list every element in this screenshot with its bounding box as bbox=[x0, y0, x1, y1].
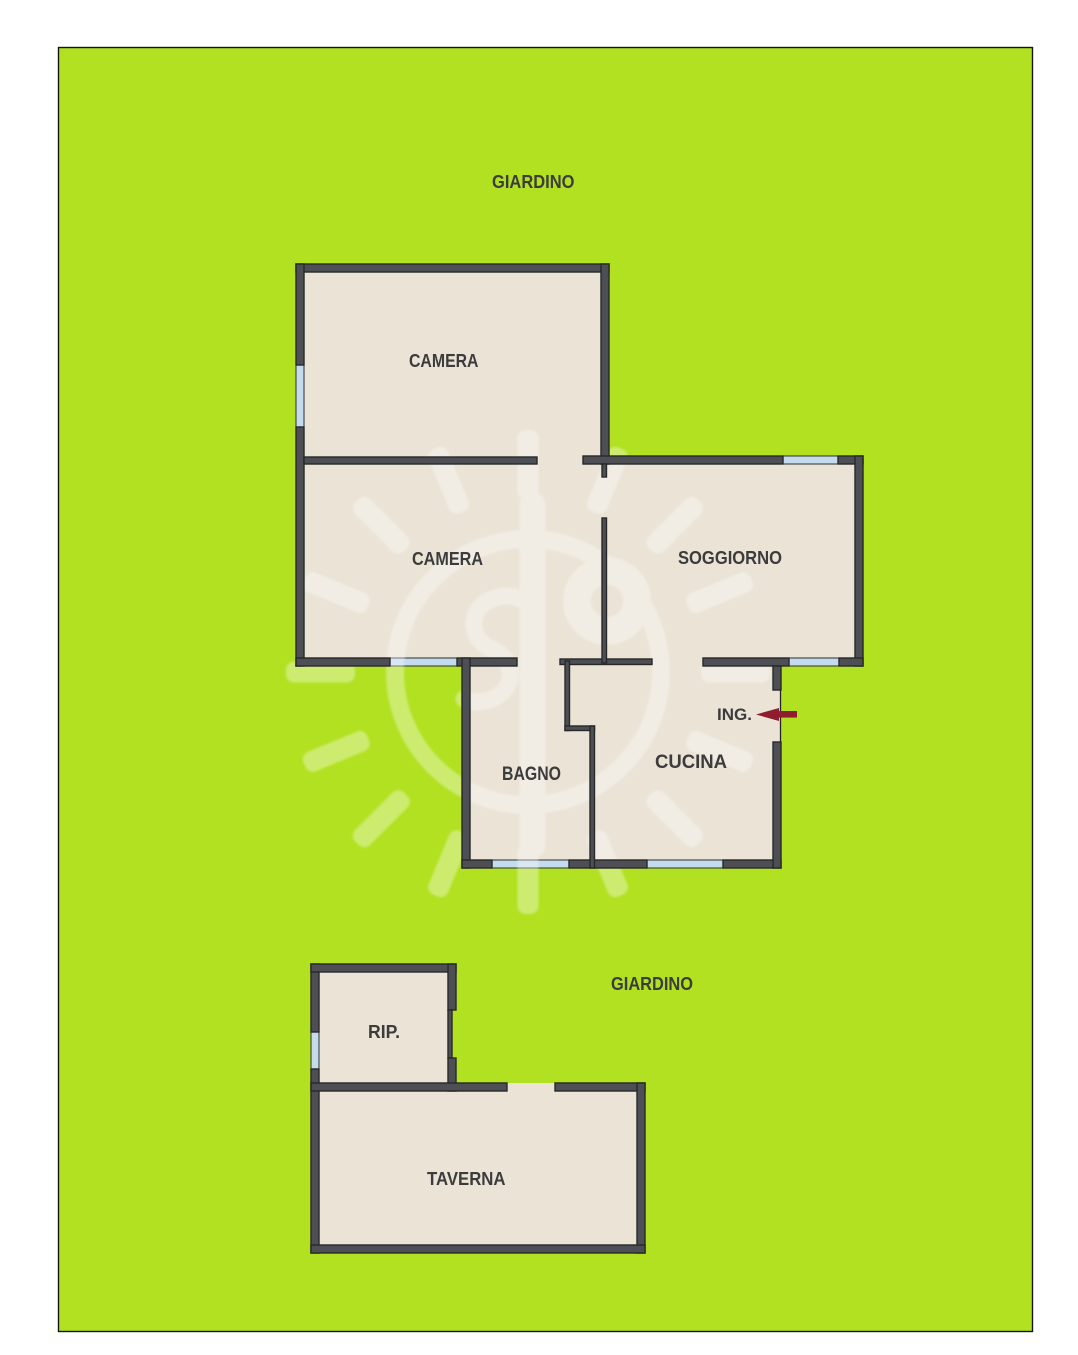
svg-text:TAVERNA: TAVERNA bbox=[427, 1168, 506, 1189]
svg-text:GIARDINO: GIARDINO bbox=[611, 974, 693, 994]
svg-text:CUCINA: CUCINA bbox=[655, 752, 727, 773]
svg-text:ING.: ING. bbox=[717, 705, 752, 724]
svg-text:RIP.: RIP. bbox=[368, 1022, 400, 1042]
svg-text:CAMERA: CAMERA bbox=[409, 351, 479, 371]
svg-text:CAMERA: CAMERA bbox=[412, 549, 483, 569]
svg-text:SOGGIORNO: SOGGIORNO bbox=[678, 547, 782, 568]
svg-text:BAGNO: BAGNO bbox=[502, 764, 561, 785]
svg-text:GIARDINO: GIARDINO bbox=[492, 172, 575, 192]
